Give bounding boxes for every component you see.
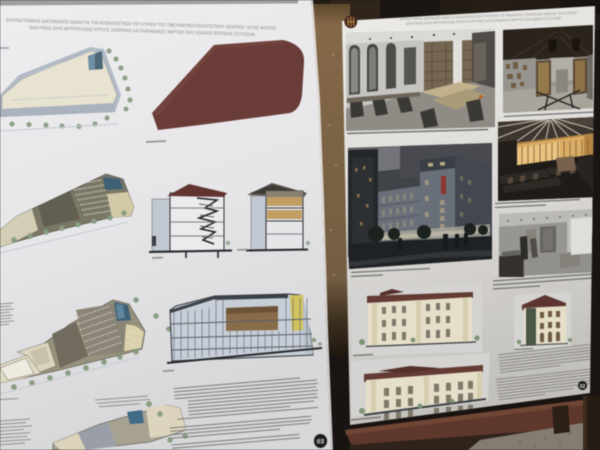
svg-text:02: 02: [580, 384, 586, 390]
svg-text:03: 03: [317, 439, 325, 446]
